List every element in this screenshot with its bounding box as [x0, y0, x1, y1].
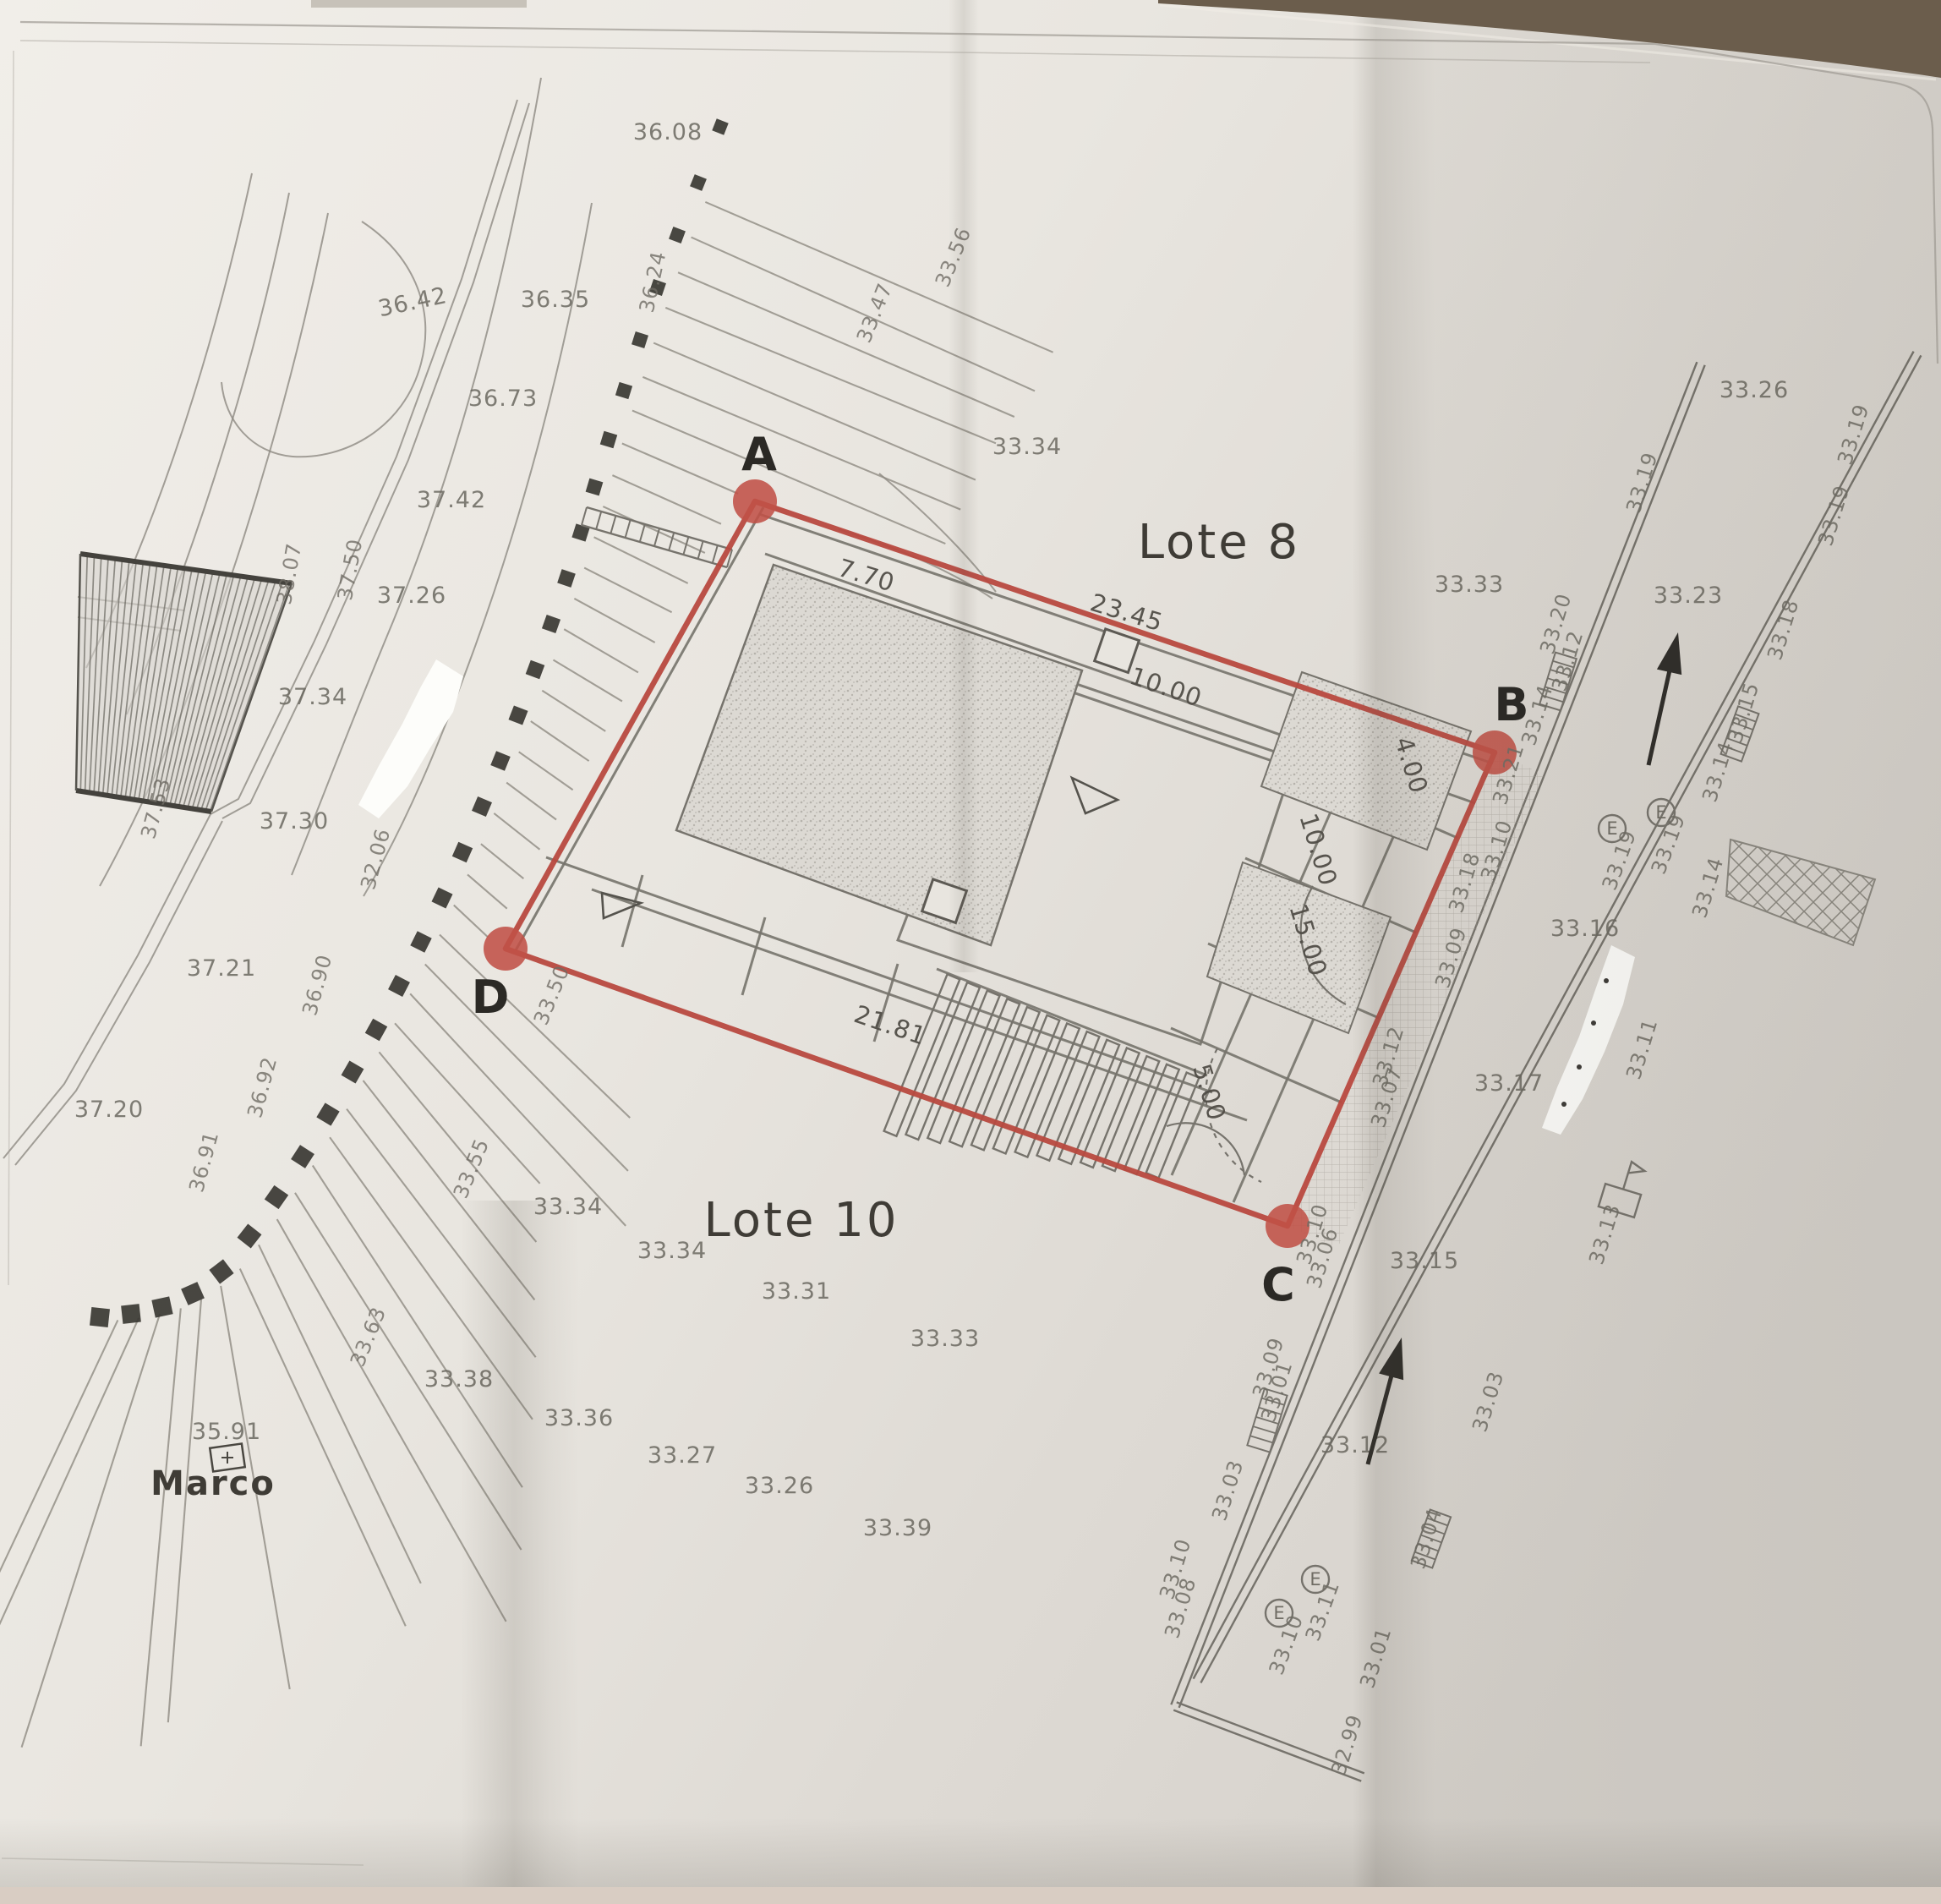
fold-crease-left-bottom — [461, 1201, 579, 1904]
spot-elevation: 33.39 — [863, 1515, 932, 1541]
corner-dot-d — [484, 927, 528, 971]
survey-plan-svg: 36.0836.4236.3536.7337.4237.2637.3437.30… — [0, 0, 1941, 1904]
corner-label-c: C — [1261, 1258, 1295, 1311]
fold-crease-right — [1353, 0, 1941, 1904]
corner-label-b: B — [1494, 678, 1528, 731]
lot-10-label: Lote 10 — [704, 1193, 899, 1248]
spot-elevation: 37.30 — [260, 808, 329, 834]
fold-crease-middle — [949, 0, 979, 972]
spot-elevation: 33.31 — [762, 1278, 831, 1305]
spot-elevation: 37.20 — [74, 1097, 144, 1123]
photographed-site-plan: 36.0836.4236.3536.7337.4237.2637.3437.30… — [0, 0, 1941, 1904]
spot-elevation: 33.26 — [745, 1473, 814, 1499]
chain-square — [151, 1296, 172, 1317]
lot-8-label: Lote 8 — [1138, 515, 1300, 570]
spot-elevation: 33.34 — [992, 434, 1062, 460]
spot-elevation: 37.21 — [187, 955, 256, 982]
table-edge-strip — [0, 1887, 1941, 1904]
corner-dot-a — [733, 479, 777, 523]
marco-elevation: 35.91 — [192, 1419, 261, 1445]
chain-square — [121, 1304, 141, 1324]
corner-label-d: D — [472, 971, 510, 1024]
spot-elevation: 36.73 — [468, 386, 538, 412]
paper-edge-sliver — [311, 0, 527, 8]
spot-elevation: 33.34 — [637, 1238, 707, 1264]
spot-elevation: 37.26 — [377, 583, 446, 609]
chain-square — [90, 1307, 110, 1327]
spot-elevation: 33.27 — [648, 1442, 717, 1469]
corner-label-a: A — [741, 428, 777, 481]
spot-elevation: 37.34 — [278, 684, 347, 710]
spot-elevation: 37.42 — [417, 487, 486, 513]
spot-elevation: 33.33 — [910, 1326, 980, 1352]
spot-elevation: 36.35 — [521, 287, 590, 313]
spot-elevation: 36.08 — [633, 119, 703, 145]
